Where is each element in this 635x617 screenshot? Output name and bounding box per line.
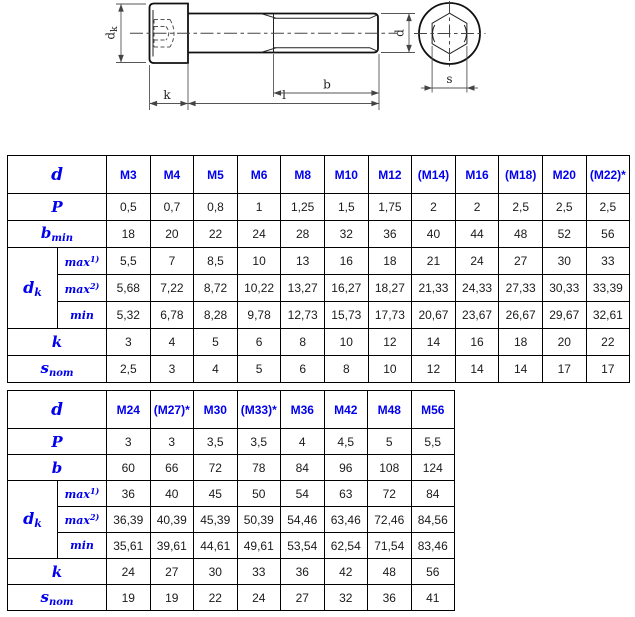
- dimension-value: 20: [542, 329, 586, 356]
- row-label-text: b: [41, 224, 52, 242]
- dimension-value: 16: [324, 248, 368, 275]
- dimension-value: 19: [107, 585, 151, 611]
- table-row: bmin182022242832364044485256: [8, 221, 630, 248]
- row-label: k: [8, 329, 107, 356]
- dimension-value: 27: [150, 559, 194, 585]
- row-sublabel: max1): [58, 481, 107, 507]
- dimension-value: 20: [150, 221, 194, 248]
- dimension-value: 14: [412, 329, 456, 356]
- table-row: dkmax1)3640455054637284: [8, 481, 455, 507]
- dimension-value: 10: [237, 248, 281, 275]
- dimension-value: 84: [411, 481, 455, 507]
- row-label-text: s: [41, 588, 49, 606]
- dimension-value: 17: [586, 356, 630, 383]
- dimension-value: 36,39: [107, 507, 151, 533]
- dimension-value: 19: [150, 585, 194, 611]
- row-sublabel: max1): [58, 248, 107, 275]
- table-row: k3456810121416182022: [8, 329, 630, 356]
- column-header-thread-size: M20: [542, 156, 586, 194]
- dimension-value: 17: [542, 356, 586, 383]
- dimension-value: 20,67: [412, 302, 456, 329]
- table-row: k2427303336424856: [8, 559, 455, 585]
- dimension-value: 48: [499, 221, 543, 248]
- dimension-value: 36: [368, 221, 412, 248]
- dimension-value: 33,39: [586, 275, 630, 302]
- row-label-text: k: [52, 563, 62, 581]
- column-header-thread-size: (M22)*: [586, 156, 630, 194]
- dimension-value: 54: [281, 481, 325, 507]
- dimension-value: 5,5: [107, 248, 151, 275]
- table-row: b606672788496108124: [8, 455, 455, 481]
- row-label: P: [8, 429, 107, 455]
- row-label: P: [8, 194, 107, 221]
- row-label-subscript: k: [34, 286, 42, 299]
- dimension-value: 5: [237, 356, 281, 383]
- dimension-value: 40,39: [150, 507, 194, 533]
- row-label: snom: [8, 585, 107, 611]
- dimension-value: 9,78: [237, 302, 281, 329]
- dim-label-d: d: [393, 29, 407, 37]
- dimension-value: 5,5: [411, 429, 455, 455]
- dimension-value: 6: [281, 356, 325, 383]
- dimension-value: 5,68: [107, 275, 151, 302]
- dimension-value: 36: [107, 481, 151, 507]
- diameter-corner-header: d: [8, 391, 107, 429]
- row-label-text: d: [51, 165, 63, 185]
- column-header-thread-size: M24: [107, 391, 151, 429]
- dim-label-s: s: [446, 72, 452, 86]
- dimension-value: 8,28: [194, 302, 238, 329]
- dimension-value: 14: [455, 356, 499, 383]
- dimension-value: 10: [324, 329, 368, 356]
- dimension-value: 71,54: [368, 533, 412, 559]
- dimension-value: 50: [237, 481, 281, 507]
- column-header-thread-size: M5: [194, 156, 238, 194]
- dimension-value: 84: [281, 455, 325, 481]
- dimension-value: 0,8: [194, 194, 238, 221]
- dimension-value: 18: [499, 329, 543, 356]
- row-label: bmin: [8, 221, 107, 248]
- dimension-value: 2,5: [107, 356, 151, 383]
- row-label-superscript: 2): [90, 281, 99, 291]
- table-row: P333,53,544,555,5: [8, 429, 455, 455]
- dimension-value: 24,33: [455, 275, 499, 302]
- table-row: min5,326,788,289,7812,7315,7317,7320,672…: [8, 302, 630, 329]
- dimension-value: 36: [368, 585, 412, 611]
- dimension-value: 3: [107, 429, 151, 455]
- dimension-value: 16,27: [324, 275, 368, 302]
- dimension-value: 30: [542, 248, 586, 275]
- dimension-value: 3,5: [237, 429, 281, 455]
- dimension-value: 27: [281, 585, 325, 611]
- dimension-value: 49,61: [237, 533, 281, 559]
- dimension-k: k: [150, 88, 189, 104]
- dimension-table-large-sizes: dM24(M27)*M30(M33)*M36M42M48M56P333,53,5…: [7, 390, 455, 611]
- column-header-thread-size: M48: [368, 391, 412, 429]
- row-label: b: [8, 455, 107, 481]
- dimension-value: 66: [150, 455, 194, 481]
- row-label: k: [8, 559, 107, 585]
- column-header-thread-size: (M18): [499, 156, 543, 194]
- diameter-corner-header: d: [8, 156, 107, 194]
- dimension-value: 1: [237, 194, 281, 221]
- dimension-value: 7,22: [150, 275, 194, 302]
- column-header-thread-size: (M14): [412, 156, 456, 194]
- row-label-text: max: [65, 514, 90, 527]
- dimension-value: 8: [281, 329, 325, 356]
- row-label-text: d: [23, 509, 34, 528]
- row-label-subscript: min: [51, 233, 73, 244]
- column-header-thread-size: M4: [150, 156, 194, 194]
- dimension-value: 42: [324, 559, 368, 585]
- column-header-thread-size: M30: [194, 391, 238, 429]
- row-label-superscript: 1): [90, 254, 99, 264]
- dimension-value: 3: [150, 429, 194, 455]
- dimension-value: 40: [412, 221, 456, 248]
- row-label-subscript: nom: [49, 597, 74, 608]
- dimension-value: 30,33: [542, 275, 586, 302]
- column-header-thread-size: M16: [455, 156, 499, 194]
- dimension-value: 24: [237, 221, 281, 248]
- dimension-value: 96: [324, 455, 368, 481]
- dimension-value: 6,78: [150, 302, 194, 329]
- dimension-value: 124: [411, 455, 455, 481]
- row-label-text: max: [65, 283, 90, 296]
- dimension-value: 8: [324, 356, 368, 383]
- column-header-thread-size: M36: [281, 391, 325, 429]
- dimension-value: 29,67: [542, 302, 586, 329]
- column-header-thread-size: (M33)*: [237, 391, 281, 429]
- dimension-value: 32: [324, 585, 368, 611]
- dimension-value: 1,75: [368, 194, 412, 221]
- dimension-value: 63,46: [324, 507, 368, 533]
- dimension-value: 18,27: [368, 275, 412, 302]
- dimension-value: 12: [412, 356, 456, 383]
- dimension-value: 72: [194, 455, 238, 481]
- dimension-value: 3: [107, 329, 151, 356]
- row-label-text: s: [41, 359, 49, 377]
- dimension-value: 35,61: [107, 533, 151, 559]
- dimension-value: 72: [368, 481, 412, 507]
- dimension-value: 52: [542, 221, 586, 248]
- row-label-text: d: [51, 400, 63, 420]
- dimension-value: 24: [237, 585, 281, 611]
- table-row: dkmax1)5,578,5101316182124273033: [8, 248, 630, 275]
- row-label-subscript: nom: [49, 368, 74, 379]
- dimension-value: 7: [150, 248, 194, 275]
- dim-label-k: k: [163, 88, 171, 102]
- table-row: max2)36,3940,3945,3950,3954,4663,4672,46…: [8, 507, 455, 533]
- dimension-value: 1,5: [324, 194, 368, 221]
- dimension-value: 23,67: [455, 302, 499, 329]
- dimension-value: 32: [324, 221, 368, 248]
- dimension-value: 24: [107, 559, 151, 585]
- dimension-value: 4: [281, 429, 325, 455]
- row-label-text: P: [51, 433, 62, 451]
- column-header-thread-size: M56: [411, 391, 455, 429]
- dimension-value: 8,72: [194, 275, 238, 302]
- dimension-value: 8,5: [194, 248, 238, 275]
- row-sublabel: min: [58, 533, 107, 559]
- dimension-value: 12,73: [281, 302, 325, 329]
- row-label-subscript: k: [34, 517, 42, 530]
- table-row: P0,50,70,811,251,51,75222,52,52,5: [8, 194, 630, 221]
- dimension-value: 3,5: [194, 429, 238, 455]
- dimension-value: 26,67: [499, 302, 543, 329]
- column-header-thread-size: M6: [237, 156, 281, 194]
- dimension-value: 44,61: [194, 533, 238, 559]
- dimension-value: 10,22: [237, 275, 281, 302]
- table-row: snom2,534568101214141717: [8, 356, 630, 383]
- row-label: snom: [8, 356, 107, 383]
- dimension-value: 3: [150, 356, 194, 383]
- dimension-value: 13,27: [281, 275, 325, 302]
- dimension-value: 63: [324, 481, 368, 507]
- dimension-value: 56: [411, 559, 455, 585]
- catalog-page: dk k l b d: [0, 0, 635, 617]
- column-header-thread-size: M42: [324, 391, 368, 429]
- dimension-value: 108: [368, 455, 412, 481]
- dimension-value: 62,54: [324, 533, 368, 559]
- row-sublabel: max2): [58, 275, 107, 302]
- table-row: min35,6139,6144,6149,6153,5462,5471,5483…: [8, 533, 455, 559]
- column-header-thread-size: M12: [368, 156, 412, 194]
- dimension-value: 56: [586, 221, 630, 248]
- dimension-value: 40: [150, 481, 194, 507]
- dimension-value: 4: [194, 356, 238, 383]
- dimension-value: 72,46: [368, 507, 412, 533]
- column-header-thread-size: M10: [324, 156, 368, 194]
- dimension-value: 18: [107, 221, 151, 248]
- row-label-text: P: [51, 198, 62, 216]
- row-label-superscript: 1): [90, 486, 99, 496]
- dimension-value: 48: [368, 559, 412, 585]
- dimension-value: 5: [194, 329, 238, 356]
- dimension-value: 14: [499, 356, 543, 383]
- dimension-value: 22: [586, 329, 630, 356]
- dimension-value: 2,5: [542, 194, 586, 221]
- dimension-value: 27,33: [499, 275, 543, 302]
- dimension-value: 53,54: [281, 533, 325, 559]
- row-label-text: b: [52, 459, 63, 477]
- table-row: max2)5,687,228,7210,2213,2716,2718,2721,…: [8, 275, 630, 302]
- dimension-d: d: [381, 14, 415, 53]
- dimension-value: 45,39: [194, 507, 238, 533]
- dimension-value: 10: [368, 356, 412, 383]
- dimension-value: 83,46: [411, 533, 455, 559]
- dimension-value: 12: [368, 329, 412, 356]
- row-group-label: dk: [8, 481, 58, 559]
- row-sublabel: max2): [58, 507, 107, 533]
- dimension-value: 1,25: [281, 194, 325, 221]
- row-label-superscript: 2): [90, 512, 99, 522]
- dimension-value: 13: [281, 248, 325, 275]
- dimension-value: 44: [455, 221, 499, 248]
- dimension-value: 0,5: [107, 194, 151, 221]
- dimension-value: 39,61: [150, 533, 194, 559]
- dimension-value: 22: [194, 585, 238, 611]
- dimension-value: 18: [368, 248, 412, 275]
- dimension-value: 24: [455, 248, 499, 275]
- dimension-value: 30: [194, 559, 238, 585]
- dimension-value: 27: [499, 248, 543, 275]
- dimension-value: 84,56: [411, 507, 455, 533]
- column-header-thread-size: (M27)*: [150, 391, 194, 429]
- row-sublabel: min: [58, 302, 107, 329]
- dimension-value: 22: [194, 221, 238, 248]
- dim-label-dk: dk: [104, 26, 121, 40]
- dimension-value: 33: [237, 559, 281, 585]
- row-label-text: max: [65, 488, 90, 501]
- dimension-value: 32,61: [586, 302, 630, 329]
- dimension-value: 50,39: [237, 507, 281, 533]
- dimension-value: 41: [411, 585, 455, 611]
- dimension-value: 33: [586, 248, 630, 275]
- dimension-b: b: [274, 78, 380, 94]
- dimension-value: 2: [455, 194, 499, 221]
- row-label-text: min: [70, 539, 94, 552]
- dimension-value: 0,7: [150, 194, 194, 221]
- column-header-thread-size: M3: [107, 156, 151, 194]
- dimension-value: 60: [107, 455, 151, 481]
- dimension-value: 36: [281, 559, 325, 585]
- dim-label-b: b: [323, 78, 331, 92]
- row-label-text: d: [23, 278, 34, 297]
- row-label-text: k: [52, 333, 62, 351]
- row-label-text: min: [70, 309, 94, 322]
- dimension-value: 21: [412, 248, 456, 275]
- dimension-table-small-sizes: dM3M4M5M6M8M10M12(M14)M16(M18)M20(M22)*P…: [7, 155, 630, 383]
- dimension-value: 2,5: [586, 194, 630, 221]
- screw-technical-drawing: dk k l b d: [0, 0, 635, 142]
- row-label-text: max: [65, 256, 90, 269]
- dimension-value: 5,32: [107, 302, 151, 329]
- row-group-label: dk: [8, 248, 58, 329]
- dimension-value: 21,33: [412, 275, 456, 302]
- dimension-value: 28: [281, 221, 325, 248]
- dimension-value: 54,46: [281, 507, 325, 533]
- dimension-value: 78: [237, 455, 281, 481]
- dimension-value: 4,5: [324, 429, 368, 455]
- dimension-value: 16: [455, 329, 499, 356]
- dim-label-l: l: [282, 88, 286, 102]
- column-header-thread-size: M8: [281, 156, 325, 194]
- dimension-value: 15,73: [324, 302, 368, 329]
- dimension-value: 5: [368, 429, 412, 455]
- dimension-value: 17,73: [368, 302, 412, 329]
- dimension-value: 4: [150, 329, 194, 356]
- dimension-value: 45: [194, 481, 238, 507]
- dimension-value: 2,5: [499, 194, 543, 221]
- table-row: snom1919222427323641: [8, 585, 455, 611]
- dimension-value: 2: [412, 194, 456, 221]
- dimension-l: l: [188, 88, 379, 104]
- dimension-value: 6: [237, 329, 281, 356]
